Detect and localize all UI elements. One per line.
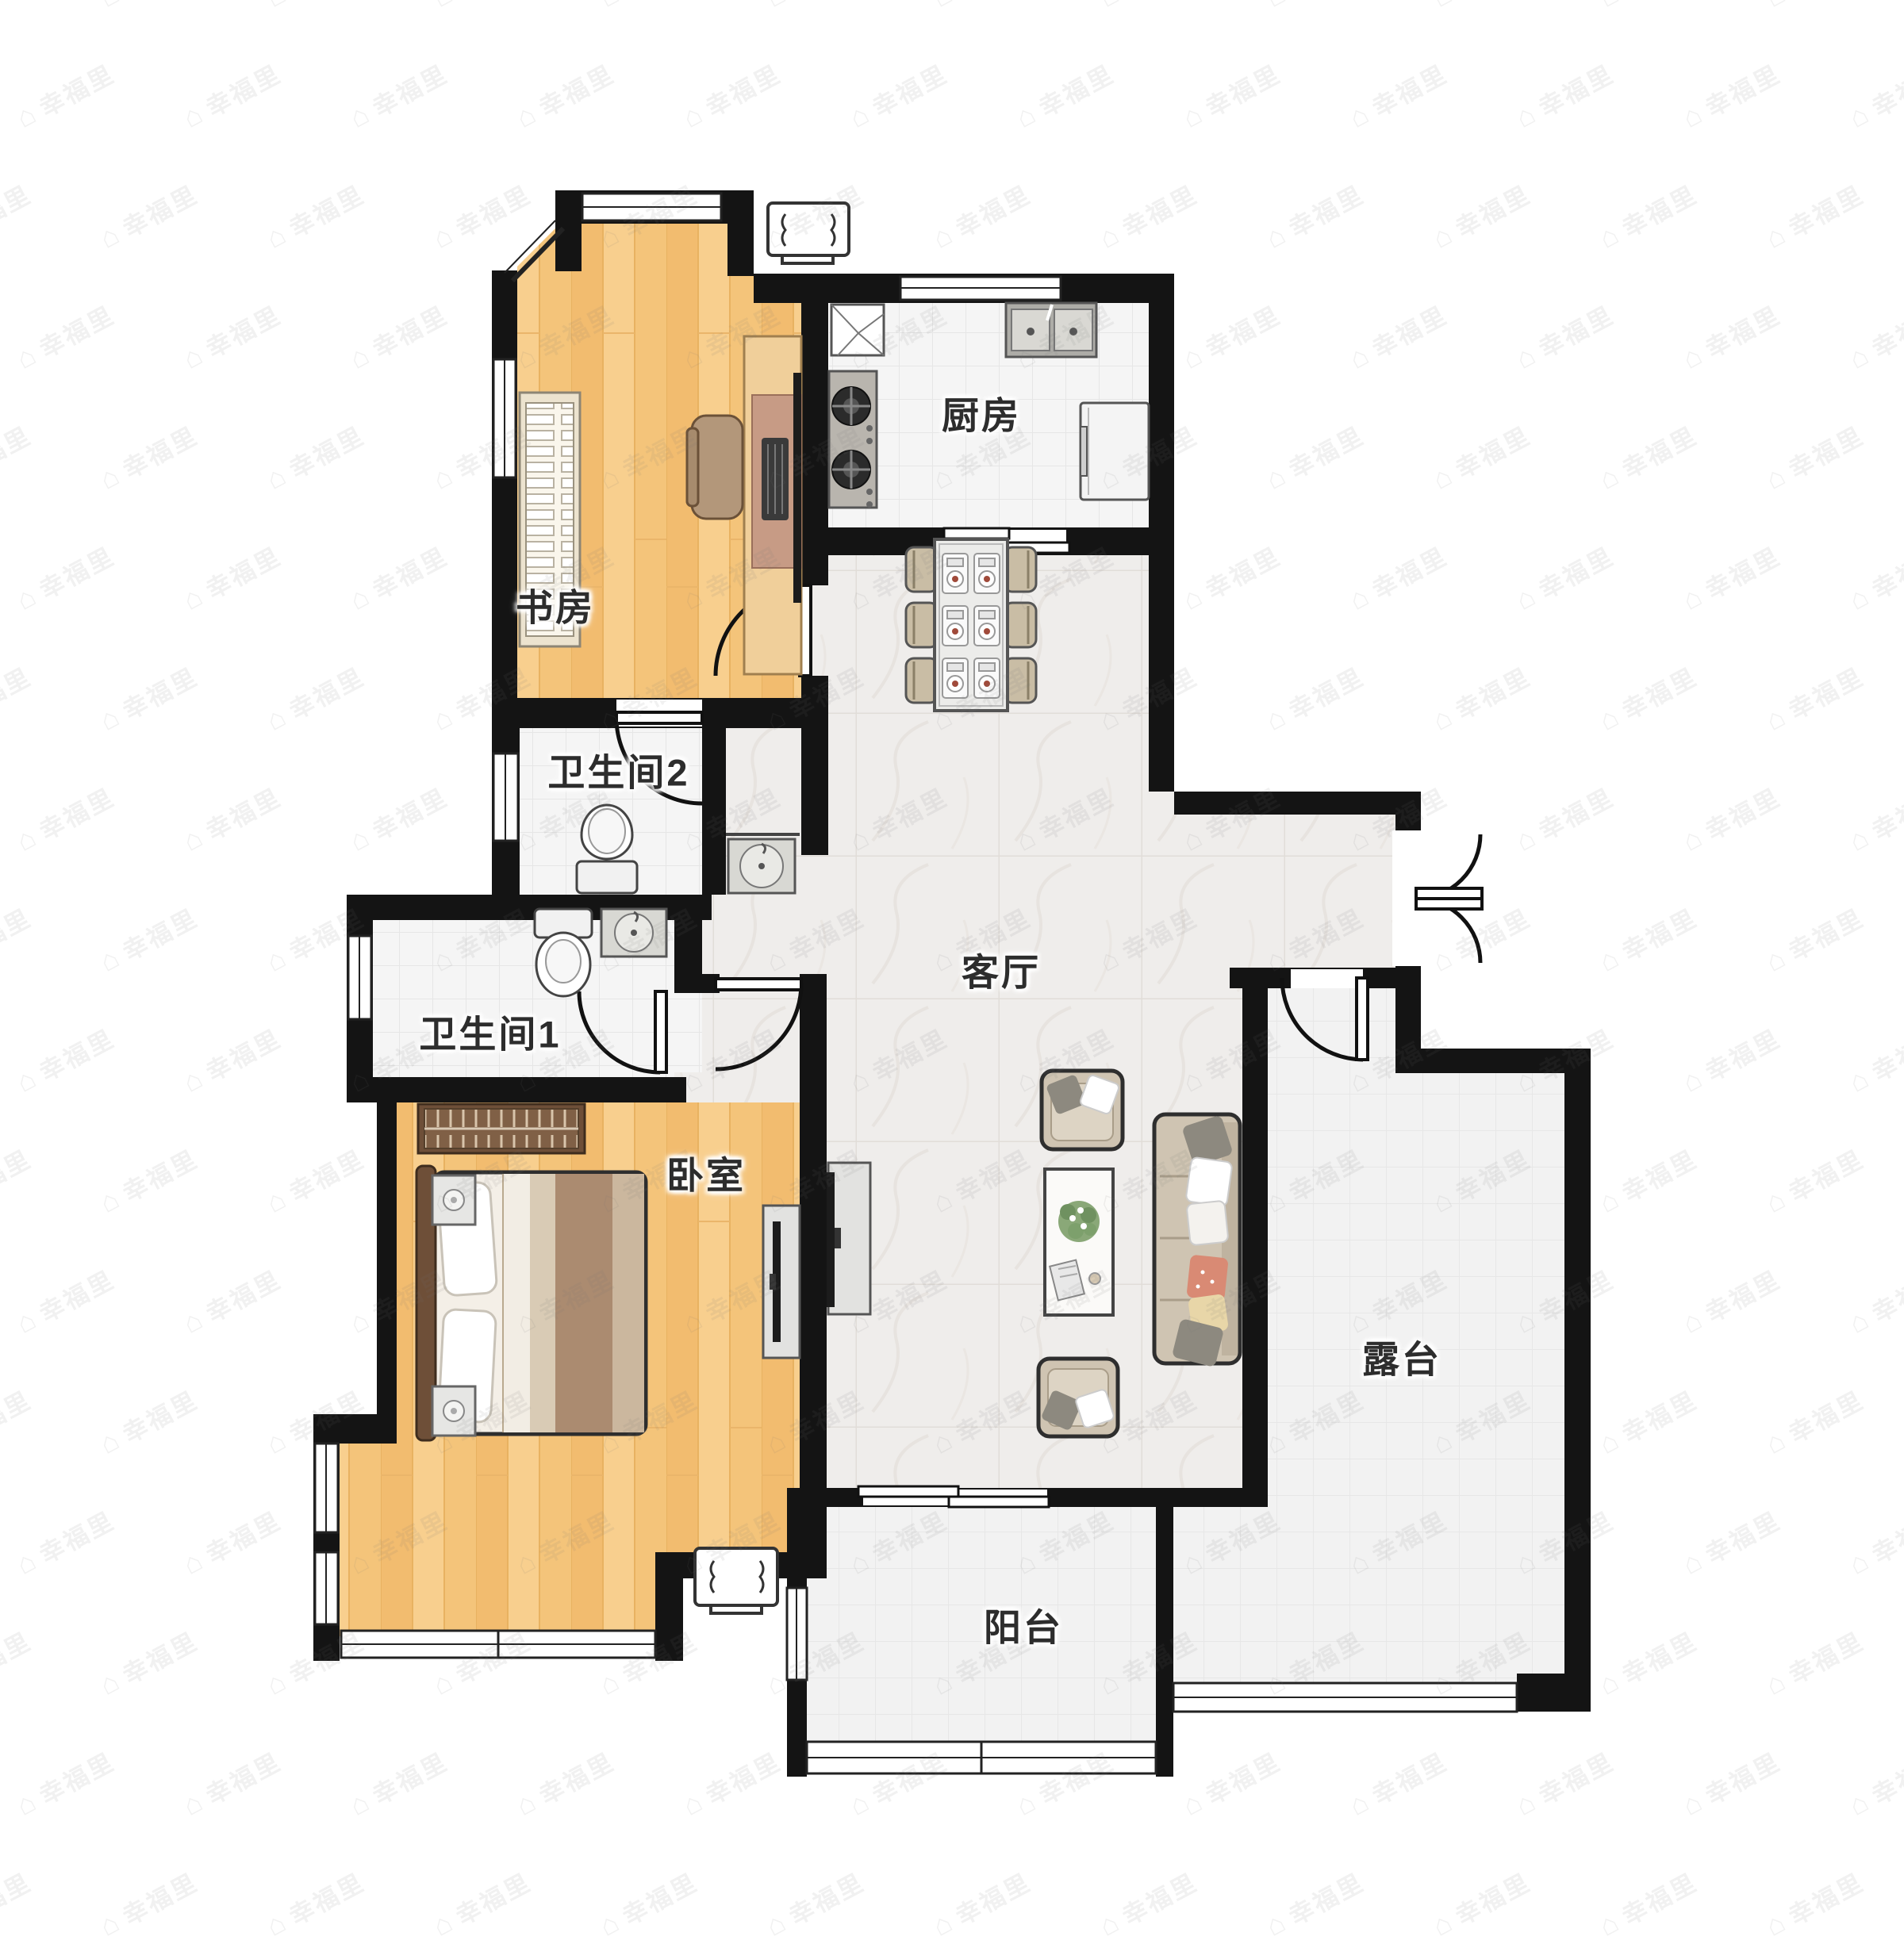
coffee-table [1045, 1169, 1113, 1315]
house-icon: ⌂ [594, 1908, 623, 1941]
bay-bottom-window [341, 1631, 655, 1658]
bathroom2-window [493, 753, 518, 841]
balcony-floor [807, 1503, 1156, 1742]
tv-cabinet-bedroom [763, 1206, 800, 1358]
balcony-bottom-railing [807, 1742, 1156, 1773]
house-icon: ⌂ [261, 1908, 290, 1941]
kitchen-window [900, 277, 1061, 300]
terrace-bottom-railing [1173, 1683, 1517, 1712]
house-icon: ⌂ [761, 1908, 789, 1941]
toilet-bathroom2 [577, 805, 637, 893]
ac-unit-top [768, 203, 849, 263]
fridge [1081, 403, 1149, 500]
bay-left-window-2 [315, 1552, 338, 1624]
armchair-bottom [1038, 1359, 1118, 1436]
house-icon: ⌂ [94, 1908, 123, 1941]
nightstand-bottom [432, 1386, 475, 1436]
kitchen-sink [1006, 303, 1096, 357]
office-chair [687, 416, 743, 519]
house-icon: ⌂ [1427, 1908, 1456, 1941]
floor-plan-canvas [0, 0, 1904, 1904]
house-icon: ⌂ [1261, 1908, 1289, 1941]
armchair-top [1042, 1071, 1123, 1149]
study-top-window [582, 194, 721, 220]
bay-left-window-1 [315, 1444, 338, 1532]
bathroom1-window [348, 936, 371, 1019]
bookshelf [520, 393, 580, 646]
study-left-window [493, 359, 516, 477]
ac-unit-bottom [695, 1548, 777, 1613]
gas-stove [829, 371, 877, 508]
washbasin-hall [726, 834, 800, 893]
desk [744, 336, 801, 674]
floor-plan-page: { "plan": { "kind": "residential-floor-p… [0, 0, 1904, 1904]
house-icon: ⌂ [1094, 1908, 1123, 1941]
house-icon: ⌂ [927, 1908, 956, 1941]
cup [1089, 1273, 1100, 1284]
house-icon: ⌂ [1594, 1908, 1622, 1941]
wardrobe [418, 1104, 585, 1153]
kitchen-corner-cabinet [831, 305, 884, 355]
house-icon: ⌂ [428, 1908, 456, 1941]
sofa [1154, 1114, 1240, 1367]
nightstand-top [432, 1175, 475, 1225]
toilet-bathroom1 [535, 909, 592, 996]
terrace-floor [1268, 988, 1421, 1683]
house-icon: ⌂ [1760, 1908, 1789, 1941]
plant [1058, 1201, 1100, 1242]
dining-table-set [906, 539, 1036, 711]
balcony-left-railing [787, 1588, 807, 1680]
tv-cabinet-living [827, 1163, 870, 1314]
washbasin-bathroom1 [601, 909, 666, 957]
